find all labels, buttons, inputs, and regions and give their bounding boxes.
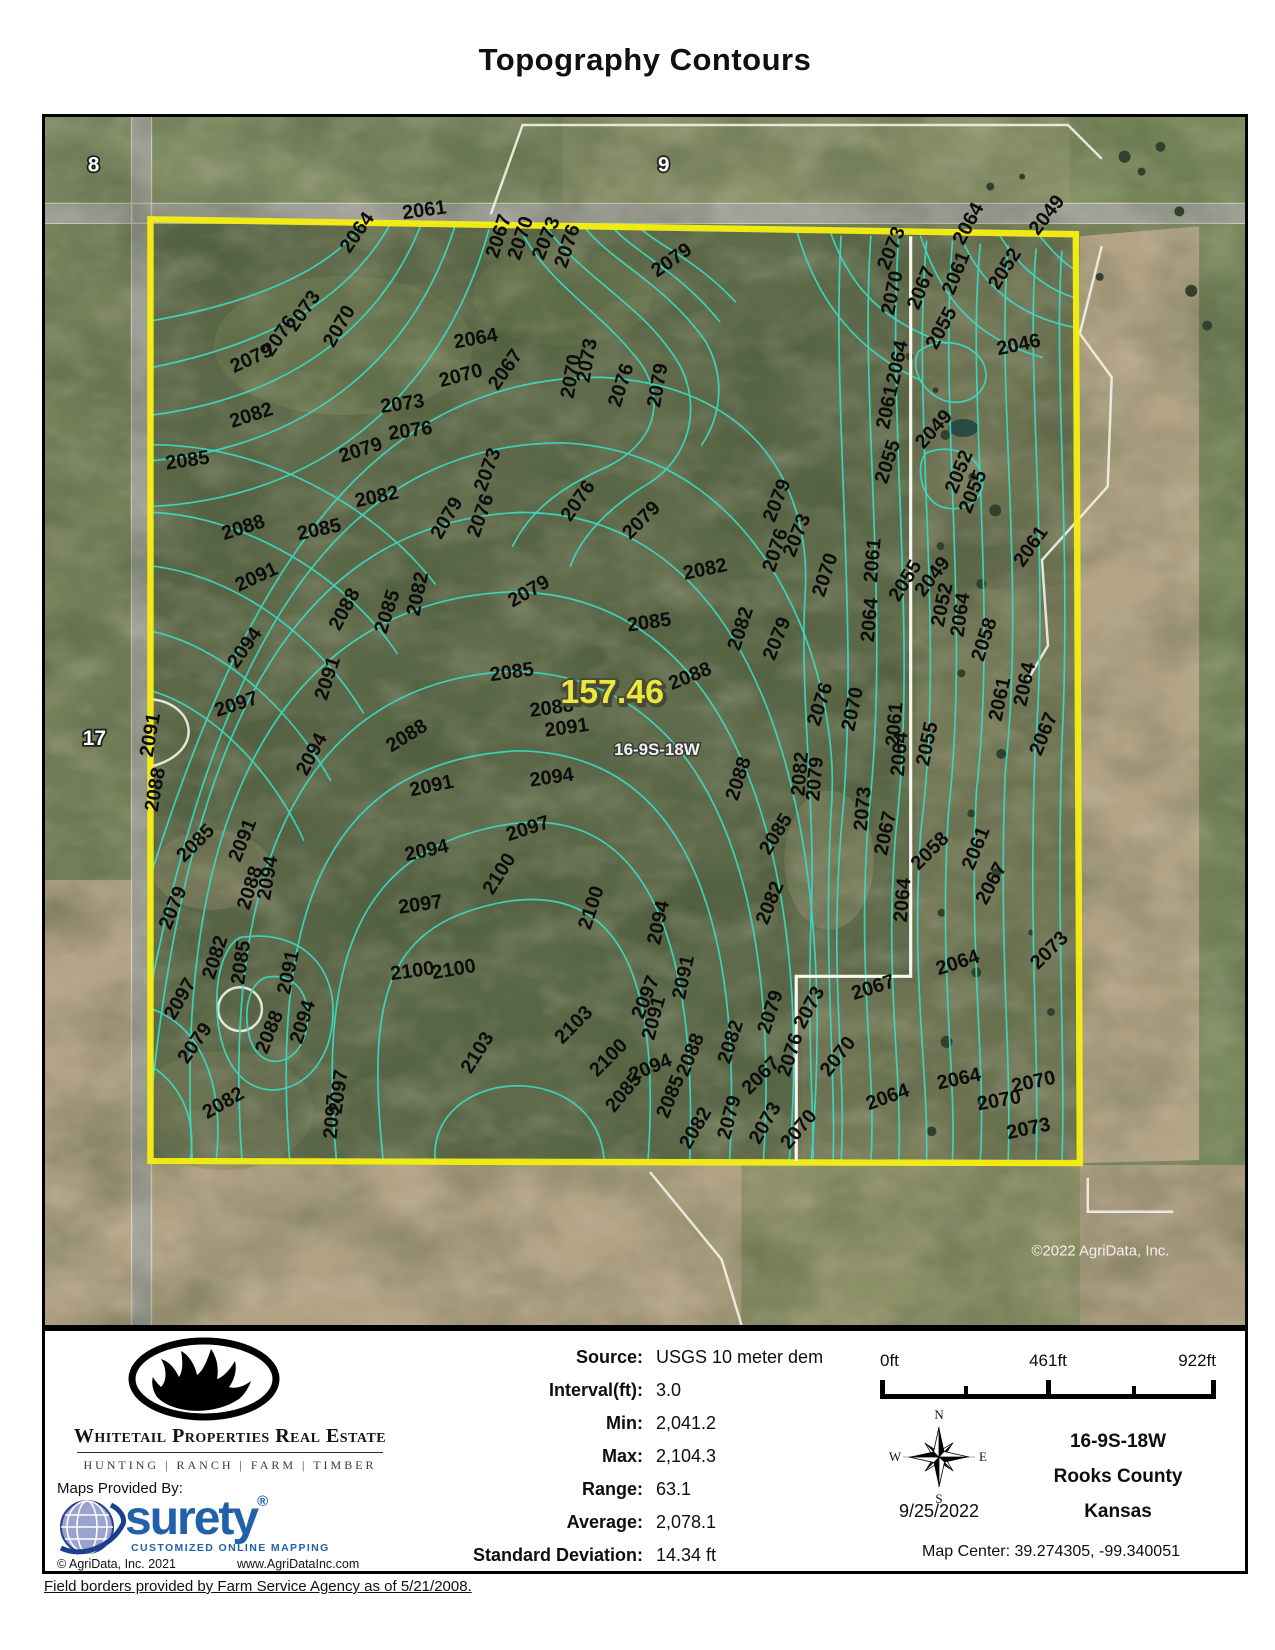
- location-parcel: 16-9S-18W: [988, 1431, 1248, 1453]
- divider: [77, 1452, 383, 1453]
- compass-rose: N S W E: [889, 1405, 989, 1509]
- map-center-coordinates: Map Center: 39.274305, -99.340051: [841, 1543, 1261, 1561]
- scale-label-mid: 461ft: [1029, 1351, 1067, 1371]
- parcel-label: 16-9S-18W: [614, 740, 700, 759]
- scale-label-end: 922ft: [1178, 1351, 1216, 1371]
- stat-row: Max:2,104.3: [413, 1446, 853, 1467]
- contour-elevation-label: 2073: [850, 786, 876, 832]
- compass-cardinal-points: [909, 1427, 969, 1487]
- scale-label-start: 0ft: [880, 1351, 899, 1371]
- contour-elevation-label: 2064: [857, 597, 883, 643]
- location-county: Rooks County: [988, 1466, 1248, 1488]
- contour-elevation-label: 2064: [887, 731, 913, 777]
- registered-mark: ®: [257, 1493, 268, 1510]
- stat-value: 3.0: [643, 1380, 681, 1401]
- whitetail-tagline: HUNTING | RANCH | FARM | TIMBER: [45, 1458, 415, 1473]
- scale-tick: [1046, 1380, 1051, 1394]
- surety-globe-icon: [57, 1496, 127, 1558]
- stat-value: 63.1: [643, 1479, 691, 1500]
- scale-tick: [880, 1380, 885, 1394]
- section-9-label: 9: [658, 154, 670, 177]
- location-block: 16-9S-18W Rooks County Kansas: [988, 1431, 1248, 1536]
- agridata-copyright: © AgriData, Inc. 2021: [57, 1557, 176, 1571]
- compass-w-label: W: [889, 1449, 902, 1464]
- info-panel: Whitetail Properties Real Estate HUNTING…: [42, 1328, 1248, 1574]
- scale-tick: [1211, 1380, 1216, 1394]
- compass-n-label: N: [934, 1407, 944, 1422]
- stat-row: Range:63.1: [413, 1479, 853, 1500]
- stat-label: Min:: [413, 1413, 643, 1434]
- stat-row: Average:2,078.1: [413, 1512, 853, 1533]
- contour-elevation-label: 2064: [890, 877, 916, 923]
- stat-label: Source:: [413, 1347, 643, 1368]
- acreage-label: 157.46: [560, 673, 663, 711]
- branding-block: Whitetail Properties Real Estate HUNTING…: [45, 1331, 415, 1571]
- stat-row: Standard Deviation:14.34 ft: [413, 1545, 853, 1566]
- stat-value: 2,078.1: [643, 1512, 716, 1533]
- whitetail-antler-logo: [127, 1337, 282, 1421]
- compass-e-label: E: [979, 1449, 987, 1464]
- page-title: Topography Contours: [42, 42, 1248, 78]
- elevation-stats: Source:USGS 10 meter demInterval(ft):3.0…: [413, 1347, 853, 1578]
- stat-label: Standard Deviation:: [413, 1545, 643, 1566]
- surety-tagline: CUSTOMIZED ONLINE MAPPING: [131, 1542, 330, 1554]
- topography-map: 2061206420672070207320762079207320762079…: [42, 114, 1248, 1328]
- stat-label: Max:: [413, 1446, 643, 1467]
- stat-row: Interval(ft):3.0: [413, 1380, 853, 1401]
- contour-elevation-label: 2061: [860, 537, 886, 583]
- location-state: Kansas: [988, 1501, 1248, 1523]
- texture-light: [45, 117, 1245, 1325]
- scale-tick: [964, 1386, 968, 1394]
- contour-elevation-label: 2097: [320, 1094, 346, 1140]
- map-copyright: ©2022 AgriData, Inc.: [1031, 1243, 1169, 1259]
- stat-value: 2,104.3: [643, 1446, 716, 1467]
- contour-elevation-label: 2082: [787, 751, 813, 797]
- stat-label: Interval(ft):: [413, 1380, 643, 1401]
- surety-logo: surety®: [125, 1491, 268, 1546]
- scale-bar-line: [880, 1394, 1216, 1399]
- scale-bar: 0ft 461ft 922ft: [880, 1351, 1216, 1399]
- map-canvas: 2061206420672070207320762079207320762079…: [45, 117, 1245, 1325]
- whitetail-company-name: Whitetail Properties Real Estate: [45, 1425, 415, 1448]
- antler-icon: [152, 1349, 251, 1411]
- stat-value: 2,041.2: [643, 1413, 716, 1434]
- report-page: Topography Contours: [0, 0, 1275, 1650]
- stat-label: Range:: [413, 1479, 643, 1500]
- stat-value: 14.34 ft: [643, 1545, 716, 1566]
- surety-wordmark: surety: [125, 1492, 257, 1545]
- stat-row: Min:2,041.2: [413, 1413, 853, 1434]
- scale-tick: [1132, 1386, 1136, 1394]
- section-17-label: 17: [83, 727, 106, 750]
- stat-value: USGS 10 meter dem: [643, 1347, 823, 1368]
- section-8-label: 8: [88, 154, 100, 177]
- stat-row: Source:USGS 10 meter dem: [413, 1347, 853, 1368]
- footer-note: Field borders provided by Farm Service A…: [44, 1578, 472, 1595]
- agridata-website-link[interactable]: www.AgriDataInc.com: [237, 1557, 359, 1571]
- stat-label: Average:: [413, 1512, 643, 1533]
